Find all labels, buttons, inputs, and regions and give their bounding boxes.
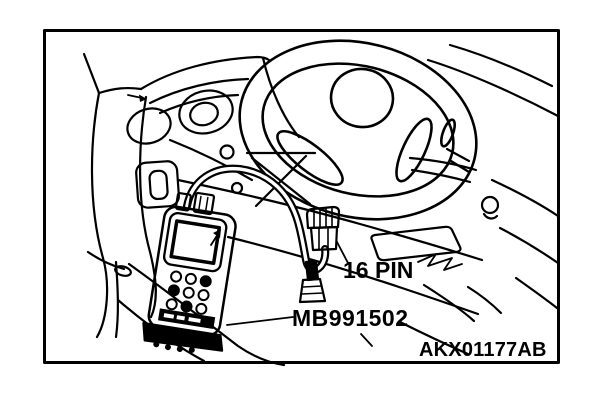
cable-boot <box>306 261 318 280</box>
wheel-spoke <box>390 115 439 186</box>
screw-hole-icon <box>221 146 234 159</box>
label-mb991502: MB991502 <box>292 307 409 330</box>
gauge-icon <box>188 100 221 128</box>
connector-boot <box>300 279 325 302</box>
airbag-pad <box>326 64 397 132</box>
gauge-icon <box>174 85 237 140</box>
key-cylinder-icon <box>482 197 498 213</box>
figure-canvas: 16 PIN MB991502 AKX01177AB <box>0 0 608 402</box>
steering-wheel <box>221 17 496 244</box>
figure-code: AKX01177AB <box>419 340 547 360</box>
direction-arrow-icon <box>128 95 221 246</box>
label-16-pin: 16 PIN <box>343 259 413 282</box>
leader-mb991502 <box>227 317 293 325</box>
instrument-cluster <box>141 57 299 139</box>
scan-tool <box>140 188 246 359</box>
keypad <box>166 271 211 315</box>
